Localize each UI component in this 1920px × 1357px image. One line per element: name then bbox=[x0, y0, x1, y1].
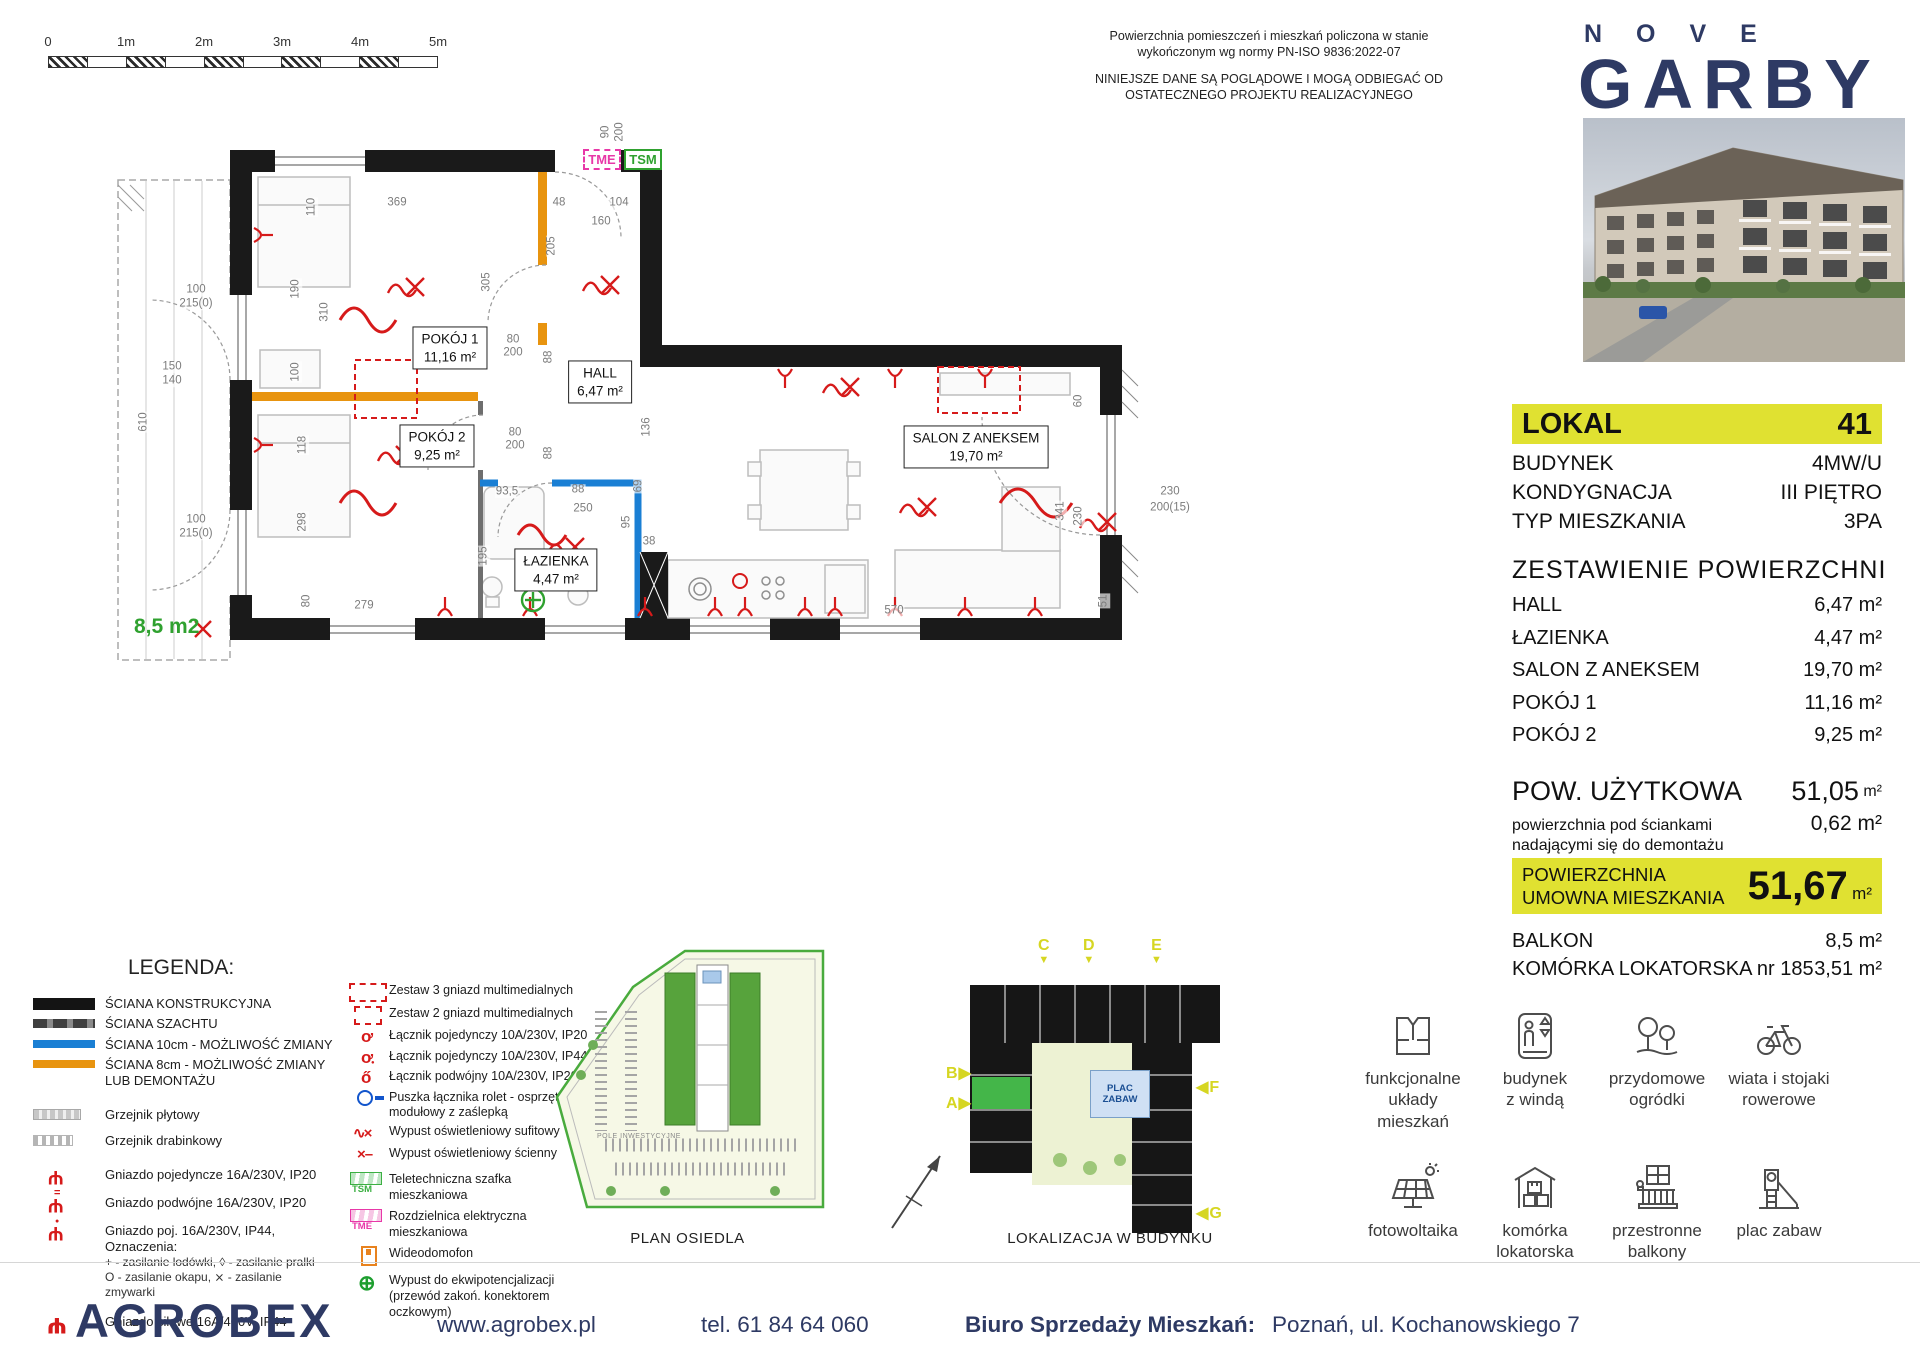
legend-item-icon bbox=[33, 1223, 105, 1242]
playground-icon bbox=[1751, 1160, 1807, 1216]
scale-bar-graphic bbox=[48, 56, 438, 68]
legend-item-icon bbox=[345, 983, 389, 1002]
room-label: POKÓJ 1 11,16 m² bbox=[412, 326, 487, 369]
dimension-label: 200 bbox=[614, 121, 626, 142]
dimension-label: 250 bbox=[572, 503, 593, 515]
area-room-label: ŁAZIENKA bbox=[1512, 627, 1609, 650]
dimension-label: 136 bbox=[641, 416, 653, 437]
balcony-row: BALKON 8,5 m² bbox=[1512, 930, 1882, 953]
dimension-label: 60 bbox=[1073, 394, 1085, 409]
dimension-label: 230 bbox=[1159, 486, 1180, 498]
contract-area-label: POWIERZCHNIA UMOWNA MIESZKANIA bbox=[1522, 863, 1725, 909]
dimension-label: 100 bbox=[185, 284, 206, 296]
legend-item-icon bbox=[345, 1049, 389, 1066]
dimension-label: 110 bbox=[306, 197, 318, 217]
dimension-label: 215(0) bbox=[178, 528, 213, 540]
legend-item: ŚCIANA KONSTRUKCYJNA bbox=[33, 996, 335, 1012]
footer-website-link[interactable]: www.agrobex.pl bbox=[437, 1312, 596, 1338]
legend-item: ŚCIANA 10cm - MOŻLIWOŚĆ ZMIANY bbox=[33, 1037, 335, 1053]
info-value: III PIĘTRO bbox=[1780, 481, 1882, 505]
contract-area-bar: POWIERZCHNIA UMOWNA MIESZKANIA 51,67 m² bbox=[1512, 858, 1882, 914]
area-room-value: 19,70 m² bbox=[1803, 659, 1882, 682]
legend-item-icon bbox=[33, 1037, 105, 1052]
dimension-label: 279 bbox=[353, 600, 374, 612]
room-name: HALL bbox=[583, 365, 617, 380]
dimension-label: 48 bbox=[552, 197, 567, 209]
dimension-label: 93,5 bbox=[495, 486, 519, 498]
legend-item-label: Gniazdo podwójne 16A/230V, IP20 bbox=[105, 1195, 306, 1211]
room-area: 9,25 m² bbox=[408, 446, 465, 464]
legend-item: ŚCIANA 8cm - MOŻLIWOŚĆ ZMIANY LUB DEMONT… bbox=[33, 1057, 335, 1090]
amenity-label: budynek z windą bbox=[1503, 1068, 1567, 1111]
legend-item-icon bbox=[345, 1273, 389, 1294]
area-room-value: 9,25 m² bbox=[1814, 724, 1882, 747]
site-plan-map: POLE INWESTYCYJNE bbox=[545, 945, 830, 1230]
dimension-label: 195 bbox=[478, 545, 490, 566]
scale-label: 3m bbox=[273, 34, 291, 49]
amenities-grid: funkcjonalne układy mieszkań budynek z w… bbox=[1352, 1008, 1844, 1262]
partition-note-row: powierzchnia pod ściankami nadającymi si… bbox=[1512, 812, 1882, 856]
disclaimer-norm: Powierzchnia pomieszczeń i mieszkań poli… bbox=[1078, 28, 1460, 61]
building-photo bbox=[1583, 118, 1905, 362]
room-name: POKÓJ 1 bbox=[421, 331, 478, 346]
room-label: SALON Z ANEKSEM 19,70 m² bbox=[904, 425, 1049, 468]
area-row: POKÓJ 2 9,25 m² bbox=[1512, 724, 1882, 747]
entry-marker: E▼ bbox=[1151, 938, 1162, 966]
elevator-icon bbox=[1507, 1008, 1563, 1064]
amenity-bike-shed: wiata i stojaki rowerowe bbox=[1718, 1008, 1840, 1132]
dimension-label: 140 bbox=[161, 375, 182, 387]
usable-area-label: POW. UŻYTKOWA bbox=[1512, 776, 1742, 807]
usable-area-row: POW. UŻYTKOWA 51,05 m² bbox=[1512, 776, 1882, 807]
area-room-label: POKÓJ 1 bbox=[1512, 692, 1596, 715]
legend-item-label: Gniazdo pojedyncze 16A/230V, IP20 bbox=[105, 1167, 316, 1183]
amenity-storage: komórka lokatorska bbox=[1474, 1160, 1596, 1263]
solar-icon bbox=[1385, 1160, 1441, 1216]
dimension-label: 369 bbox=[386, 197, 407, 209]
room-area: 19,70 m² bbox=[913, 447, 1040, 465]
legend-item-icon: TSM bbox=[345, 1172, 389, 1198]
contract-area-value: 51,67 bbox=[1748, 864, 1848, 908]
areas-title: ZESTAWIENIE POWIERZCHNI bbox=[1512, 556, 1886, 585]
room-label: ŁAZIENKA 4,47 m² bbox=[514, 548, 597, 591]
dimension-label: 215(0) bbox=[178, 298, 213, 310]
legend-item: Gniazdo pojedyncze 16A/230V, IP20 bbox=[33, 1167, 335, 1186]
dimension-label: 160 bbox=[590, 216, 611, 228]
footer-phone: tel. 61 84 64 060 bbox=[701, 1312, 869, 1338]
legend-item: Grzejnik płytowy bbox=[33, 1107, 335, 1123]
dimension-label: 100 bbox=[185, 514, 206, 526]
legend-item-icon bbox=[33, 996, 105, 1011]
site-plan-caption: PLAN OSIEDLA bbox=[545, 1230, 830, 1247]
dimension-label: 200(15) bbox=[1149, 502, 1191, 514]
storage-row: KOMÓRKA LOKATORSKA nr 185 3,51 m² bbox=[1512, 958, 1882, 981]
dimension-label: 104 bbox=[608, 197, 629, 209]
legend-item-label: ŚCIANA KONSTRUKCYJNA bbox=[105, 996, 271, 1012]
building-photo-graphic bbox=[1583, 118, 1905, 362]
floor-plan-sheet: 0 1m 2m 3m 4m 5m Powierzchnia pomieszcze… bbox=[0, 0, 1920, 1357]
entry-marker: ◀F bbox=[1196, 1080, 1219, 1096]
scale-label: 2m bbox=[195, 34, 213, 49]
dimension-label: 80 bbox=[508, 427, 523, 439]
dimension-label: 310 bbox=[319, 301, 331, 322]
dimension-label: 80 bbox=[506, 334, 521, 346]
amenity-gardens: przydomowe ogródki bbox=[1596, 1008, 1718, 1132]
garden-icon bbox=[1629, 1008, 1685, 1064]
info-label: TYP MIESZKANIA bbox=[1512, 510, 1686, 534]
floor-plan: POKÓJ 1 11,16 m² POKÓJ 2 9,25 m² HALL 6,… bbox=[100, 115, 1200, 695]
area-room-value: 11,16 m² bbox=[1805, 692, 1882, 715]
footer-office-label: Biuro Sprzedaży Mieszkań: bbox=[965, 1312, 1255, 1338]
legend-item-label: Wypust oświetleniowy ścienny bbox=[389, 1146, 557, 1162]
dimension-label: 100 bbox=[290, 361, 302, 382]
storage-icon bbox=[1507, 1160, 1563, 1216]
footer-office-address: Poznań, ul. Kochanowskiego 7 bbox=[1272, 1312, 1580, 1338]
agrobex-logo: AGROBEX bbox=[75, 1293, 334, 1348]
legend-item-icon bbox=[33, 1195, 105, 1214]
site-inner-label: POLE INWESTYCYJNE bbox=[597, 1133, 681, 1140]
building-location-caption: LOKALIZACJA W BUDYNKU bbox=[950, 1230, 1270, 1247]
partition-note-label: powierzchnia pod ściankami nadającymi si… bbox=[1512, 816, 1724, 856]
legend-item-label: Grzejnik płytowy bbox=[105, 1107, 200, 1123]
info-label: KONDYGNACJA bbox=[1512, 481, 1672, 505]
balcony-area-label: 8,5 m2 bbox=[134, 615, 199, 639]
unit-number: 41 bbox=[1838, 406, 1872, 442]
storage-label: KOMÓRKA LOKATORSKA nr 185 bbox=[1512, 958, 1814, 981]
usable-area-unit: m² bbox=[1863, 783, 1882, 800]
unit-header-bar: LOKAL 41 bbox=[1512, 404, 1882, 444]
footer-divider bbox=[0, 1262, 1920, 1263]
dimension-label: 205 bbox=[546, 235, 558, 256]
amenity-label: przydomowe ogródki bbox=[1609, 1068, 1705, 1111]
legend-item-label: Wypust oświetleniowy sufitowy bbox=[389, 1124, 560, 1140]
legend-item-icon: TME bbox=[345, 1209, 389, 1235]
area-row: POKÓJ 1 11,16 m² bbox=[1512, 692, 1882, 715]
amenity-label: funkcjonalne układy mieszkań bbox=[1352, 1068, 1474, 1132]
balcony-icon bbox=[1629, 1160, 1685, 1216]
legend-item-icon bbox=[345, 1124, 389, 1142]
area-room-value: 6,47 m² bbox=[1814, 594, 1882, 617]
north-compass-icon bbox=[878, 1146, 958, 1238]
tsm-tag: TSM bbox=[624, 149, 662, 170]
dimension-label: 200 bbox=[504, 440, 525, 452]
disclaimer: Powierzchnia pomieszczeń i mieszkań poli… bbox=[1078, 28, 1460, 103]
dimension-label: 95 bbox=[621, 515, 633, 530]
dimension-label: 200 bbox=[502, 347, 523, 359]
legend-item-icon bbox=[345, 1006, 389, 1025]
area-room-label: HALL bbox=[1512, 594, 1562, 617]
legend-item-label: ŚCIANA 10cm - MOŻLIWOŚĆ ZMIANY bbox=[105, 1037, 333, 1053]
amenity-apartment-layouts: funkcjonalne układy mieszkań bbox=[1352, 1008, 1474, 1132]
dimension-label: 51 bbox=[1098, 594, 1110, 609]
storage-value: 3,51 m² bbox=[1814, 958, 1882, 981]
dimension-label: 88 bbox=[543, 446, 555, 461]
room-area: 6,47 m² bbox=[577, 382, 623, 400]
dimension-label: 305 bbox=[481, 271, 493, 292]
unit-info-row: KONDYGNACJA III PIĘTRO bbox=[1512, 481, 1882, 505]
scale-bar: 0 1m 2m 3m 4m 5m bbox=[48, 34, 438, 78]
dimension-label: 341 bbox=[1055, 500, 1067, 521]
room-name: POKÓJ 2 bbox=[408, 429, 465, 444]
balcony-value: 8,5 m² bbox=[1825, 930, 1882, 953]
info-value: 4MW/U bbox=[1812, 452, 1882, 476]
scale-label: 4m bbox=[351, 34, 369, 49]
dimension-label: 90 bbox=[600, 125, 612, 140]
area-row: HALL 6,47 m² bbox=[1512, 594, 1882, 617]
amenity-solar: fotowoltaika bbox=[1352, 1160, 1474, 1263]
area-room-value: 4,47 m² bbox=[1814, 627, 1882, 650]
room-name: ŁAZIENKA bbox=[523, 553, 588, 568]
legend-item: Gniazdo podwójne 16A/230V, IP20 bbox=[33, 1195, 335, 1214]
area-room-label: POKÓJ 2 bbox=[1512, 724, 1596, 747]
usable-area-value: 51,05 bbox=[1791, 776, 1859, 806]
area-room-label: SALON Z ANEKSEM bbox=[1512, 659, 1700, 682]
apartment-layout-icon bbox=[1385, 1008, 1441, 1064]
dimension-label: 80 bbox=[301, 594, 313, 609]
room-area: 4,47 m² bbox=[523, 570, 588, 588]
entry-marker: ◀G bbox=[1196, 1206, 1222, 1222]
site-plan-graphic bbox=[545, 945, 830, 1230]
legend-item-label: Wideodomofon bbox=[389, 1246, 473, 1262]
legend-item-icon bbox=[345, 1090, 389, 1106]
amenity-label: wiata i stojaki rowerowe bbox=[1728, 1068, 1829, 1111]
dimension-label: 298 bbox=[297, 511, 309, 532]
room-label: HALL 6,47 m² bbox=[568, 360, 632, 403]
dimension-label: 38 bbox=[642, 536, 657, 548]
legend-item-label: ŚCIANA 8cm - MOŻLIWOŚĆ ZMIANY LUB DEMONT… bbox=[105, 1057, 325, 1090]
room-name: SALON Z ANEKSEM bbox=[913, 430, 1040, 445]
amenity-label: fotowoltaika bbox=[1368, 1220, 1458, 1241]
legend-item-label: Grzejnik drabinkowy bbox=[105, 1133, 222, 1149]
bike-shed-icon bbox=[1751, 1008, 1807, 1064]
building-entry-markers: C▼ D▼ E▼ B▶ A▶ ◀F ◀G bbox=[950, 930, 1250, 1252]
tme-tag: TME bbox=[583, 149, 621, 170]
scale-bar-labels: 0 1m 2m 3m 4m 5m bbox=[48, 34, 438, 52]
entry-marker: C▼ bbox=[1038, 938, 1050, 966]
legend-item-icon bbox=[345, 1069, 389, 1086]
partition-note-value: 0,62 m² bbox=[1811, 812, 1882, 836]
info-value: 3PA bbox=[1844, 510, 1882, 534]
areas-table: HALL 6,47 m² ŁAZIENKA 4,47 m² SALON Z AN… bbox=[1512, 594, 1882, 747]
brand-logo: NOVE GARBY bbox=[1578, 20, 1910, 118]
brand-name-main: GARBY bbox=[1578, 51, 1910, 118]
info-label: BUDYNEK bbox=[1512, 452, 1614, 476]
amenity-label: plac zabaw bbox=[1736, 1220, 1821, 1241]
area-row: ŁAZIENKA 4,47 m² bbox=[1512, 627, 1882, 650]
dimension-label: 570 bbox=[883, 605, 904, 617]
scale-label: 5m bbox=[429, 34, 447, 49]
amenity-elevator: budynek z windą bbox=[1474, 1008, 1596, 1132]
scale-label: 0 bbox=[44, 34, 51, 49]
legend-item-icon bbox=[345, 1028, 389, 1045]
building-location-map: PLAC ZABAW C▼ D▼ E▼ B▶ A▶ ◀F ◀G bbox=[950, 930, 1250, 1252]
room-area: 11,16 m² bbox=[421, 348, 478, 366]
legend-item: ŚCIANA SZACHTU bbox=[33, 1016, 335, 1032]
legend-item: Grzejnik drabinkowy bbox=[33, 1133, 335, 1149]
legend-item-icon bbox=[33, 1133, 105, 1148]
dimension-label: 118 bbox=[297, 435, 309, 455]
dimension-label: 69 bbox=[633, 479, 645, 494]
unit-label: LOKAL bbox=[1522, 408, 1622, 441]
amenity-balconies: przestronne balkony bbox=[1596, 1160, 1718, 1263]
legend-item-icon bbox=[33, 1107, 105, 1122]
room-label: POKÓJ 2 9,25 m² bbox=[399, 424, 474, 467]
entry-marker: B▶ bbox=[946, 1066, 971, 1082]
dimension-label: 88 bbox=[543, 350, 555, 365]
legend-title: LEGENDA: bbox=[128, 956, 234, 980]
amenity-label: przestronne balkony bbox=[1612, 1220, 1702, 1263]
legend-item-icon bbox=[33, 1167, 105, 1186]
dimension-label: 150 bbox=[161, 361, 182, 373]
amenity-label: komórka lokatorska bbox=[1496, 1220, 1573, 1263]
entry-marker: D▼ bbox=[1083, 938, 1095, 966]
scale-label: 1m bbox=[117, 34, 135, 49]
dimension-labels: 90 200 369 48 104 160 205 305 110 190 31… bbox=[100, 115, 1200, 695]
entry-marker: A▶ bbox=[946, 1096, 971, 1112]
legend-item-label: ŚCIANA SZACHTU bbox=[105, 1016, 218, 1032]
legend-item-icon bbox=[33, 1016, 105, 1031]
dimension-label: 610 bbox=[138, 411, 150, 432]
dimension-label: 230 bbox=[1073, 505, 1085, 526]
legend-item-icon bbox=[345, 1146, 389, 1163]
disclaimer-note: NINIEJSZE DANE SĄ POGLĄDOWE I MOGĄ ODBIE… bbox=[1078, 71, 1460, 104]
area-row: SALON Z ANEKSEM 19,70 m² bbox=[1512, 659, 1882, 682]
balcony-label: BALKON bbox=[1512, 930, 1593, 953]
amenity-playground: plac zabaw bbox=[1718, 1160, 1840, 1263]
unit-info-row: TYP MIESZKANIA 3PA bbox=[1512, 510, 1882, 534]
legend-column-1: ŚCIANA KONSTRUKCYJNA ŚCIANA SZACHTU ŚCIA… bbox=[33, 996, 335, 1336]
legend-item-icon bbox=[33, 1057, 105, 1072]
dimension-label: 190 bbox=[290, 278, 302, 299]
contract-area-unit: m² bbox=[1852, 884, 1872, 903]
unit-info-row: BUDYNEK 4MW/U bbox=[1512, 452, 1882, 476]
dimension-label: 88 bbox=[571, 484, 586, 496]
